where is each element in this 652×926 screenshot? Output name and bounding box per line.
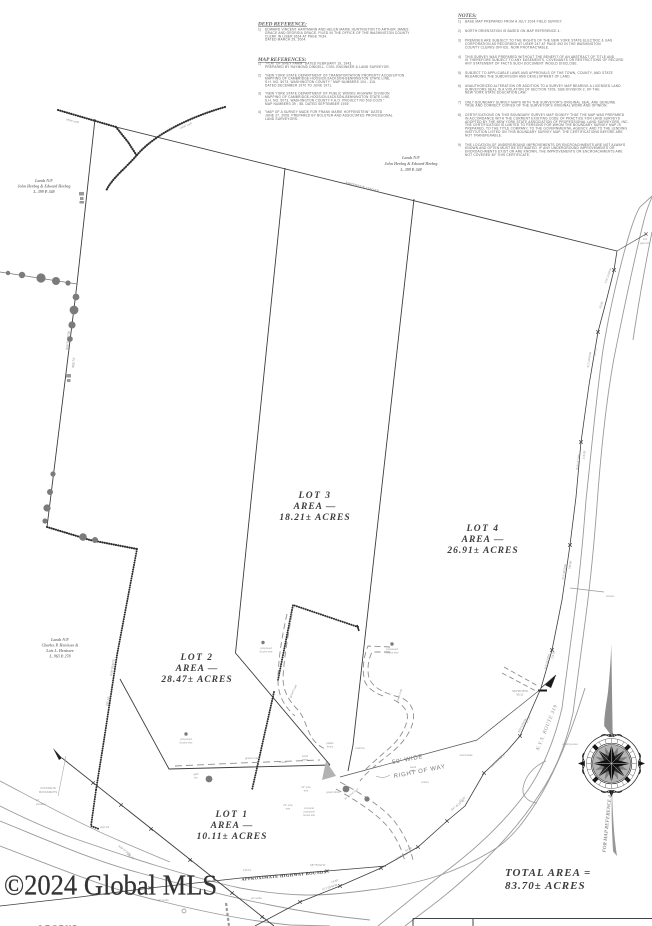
svg-text:DEED REFERENCE:: DEED REFERENCE: [257,22,307,28]
svg-text:REGARDING THE SUBDIVISION AND: REGARDING THE SUBDIVISION AND DEVELOPMEN… [465,74,571,78]
svg-text:proposed: proposed [304,810,315,814]
svg-text:wood stake: wood stake [459,753,473,757]
svg-text:LAND SURVEYORS.: LAND SURVEYORS. [265,117,298,121]
svg-text:iron: iron [643,238,648,241]
svg-text:house site: house site [180,741,193,745]
svg-text:NOT TRANSFERABLE.: NOT TRANSFERABLE. [465,133,502,137]
svg-text:pit media: pit media [251,896,262,900]
svg-text:5): 5) [458,71,461,75]
svg-text:compost: compost [304,806,314,810]
svg-text:4): 4) [458,55,461,59]
svg-text:Lands N/F: Lands N/F [34,178,53,183]
svg-text:AREA —: AREA — [175,664,219,674]
svg-text:7): 7) [458,100,461,104]
svg-text:Lands N/F: Lands N/F [401,155,420,160]
svg-text:NORTH ORIENTATION IS BASED ON: NORTH ORIENTATION IS BASED ON MAP REFERE… [465,29,561,33]
svg-text:24" pine: 24" pine [283,803,293,807]
svg-text:pipe fnd: pipe fnd [640,242,650,245]
svg-text:elevation: elevation [36,803,47,806]
svg-text:LOT 3: LOT 3 [297,491,331,501]
svg-text:BASE MAP PREPARED FROM A JULY: BASE MAP PREPARED FROM A JULY 2024 FIELD… [465,20,563,24]
svg-text:28.47± ACRES: 28.47± ACRES [160,675,232,685]
svg-text:L. 963 P. 278: L. 963 P. 278 [48,654,70,659]
svg-text:John Herbeg & Edward Herbeg: John Herbeg & Edward Herbeg [17,184,71,189]
svg-text:Lands N/F: Lands N/F [50,637,69,642]
svg-text:stake: stake [410,769,417,773]
svg-text:PREPARED BY RAYMOND DINGELL, C: PREPARED BY RAYMOND DINGELL, CIVIL ENGIN… [265,65,390,69]
svg-text:house site: house site [260,650,273,654]
svg-text:AREA —: AREA — [210,821,254,831]
svg-text:John Herbeg & Edward Herbeg: John Herbeg & Edward Herbeg [384,161,438,166]
svg-text:10.11± ACRES: 10.11± ACRES [197,832,268,842]
svg-text:LOT 2: LOT 2 [179,653,213,663]
svg-text:NOTES:: NOTES: [457,13,477,19]
svg-text:NOT COVERED BY THIS CERTIFICAT: NOT COVERED BY THIS CERTIFICATE. [465,153,530,157]
svg-text:DATED DECEMBER 1970 TO JUNE 19: DATED DECEMBER 1970 TO JUNE 1971. [265,83,332,87]
svg-text:L. 399 P. 348: L. 399 P. 348 [399,167,421,172]
svg-text:tree: tree [304,789,309,793]
svg-text:©2024 Global MLS: ©2024 Global MLS [4,869,217,901]
svg-text:TRUE AND CORRECT COPIES OF THE: TRUE AND CORRECT COPIES OF THE SURVEYOR'… [465,104,608,108]
svg-text:COUNTY CLERKS OFFICE. NOW PROT: COUNTY CLERKS OFFICE. NOW PROTRACTABLE. [465,45,549,49]
svg-text:4): 4) [258,110,261,114]
svg-text:mail box: mail box [355,746,365,750]
svg-text:LOT 4: LOT 4 [465,524,499,534]
svg-text:tree: tree [286,807,291,811]
svg-text:garb: garb [193,772,199,776]
svg-text:2): 2) [258,73,261,77]
svg-text:MAP NUMBERS 39 - 58. DATED SEP: MAP NUMBERS 39 - 58. DATED SEPTEMBER 193… [265,102,350,106]
svg-text:18.21± ACRES: 18.21± ACRES [279,513,350,523]
svg-text:fence: fence [327,745,334,749]
svg-text:3): 3) [458,39,461,43]
svg-text:wood: wood [410,765,417,769]
svg-text:culvert: culvert [421,780,429,784]
svg-text:13': 13' [36,799,40,802]
svg-text:149.13': 149.13' [243,868,252,872]
svg-text:59.11': 59.11' [516,693,524,697]
svg-text:1): 1) [258,62,261,66]
svg-text:ANY STATEMENT OF FACTS SUCH DO: ANY STATEMENT OF FACTS SUCH DOCUMENT WOU… [465,62,578,66]
svg-text:house site: house site [386,651,399,655]
svg-text:83.70± ACRES: 83.70± ACRES [505,880,586,892]
svg-text:8): 8) [458,113,461,117]
svg-text:S87°50'40"W: S87°50'40"W [310,863,326,867]
svg-text:TOTAL AREA =: TOTAL AREA = [505,867,591,879]
svg-text:6): 6) [458,84,461,88]
svg-text:26.91± ACRES: 26.91± ACRES [446,546,518,556]
svg-text:AREA —: AREA — [461,535,505,545]
svg-text:NEW YORK STATE EDUCATION LAW.: NEW YORK STATE EDUCATION LAW. [465,91,527,95]
svg-text:culvert: culvert [606,594,614,598]
svg-text:24" pine: 24" pine [301,785,311,789]
svg-text:AREA —: AREA — [293,502,337,512]
svg-text:2): 2) [458,29,461,33]
svg-text:stake: stake [302,758,309,762]
svg-text:S01°30'18"W: S01°30'18"W [512,689,528,693]
svg-text:9): 9) [458,143,461,147]
svg-text:1): 1) [458,20,461,24]
svg-text:house site: house site [303,813,315,817]
svg-text:gravel road: gravel road [245,756,259,760]
svg-text:bin: bin [194,776,198,780]
svg-text:plastic: plastic [326,741,334,745]
svg-text:DATED MARCH 29, 2004.: DATED MARCH 29, 2004. [265,38,307,42]
svg-text:1): 1) [258,28,261,32]
svg-text:gravel drive: gravel drive [326,790,340,794]
svg-text:Lois L. Henissee: Lois L. Henissee [45,648,74,653]
svg-text:MONUMENTS: MONUMENTS [39,790,57,794]
svg-text:3): 3) [258,92,261,96]
svg-text:L. 399 P. 348: L. 399 P. 348 [32,189,54,194]
svg-text:culvert: culvert [279,760,287,764]
svg-text:LOT 1: LOT 1 [214,810,248,820]
svg-text:wood: wood [302,754,309,758]
svg-text:Charles P. Henissee &: Charles P. Henissee & [42,643,80,648]
svg-text:parking area: parking area [562,742,578,746]
svg-text:pipe fnd: pipe fnd [100,825,110,829]
